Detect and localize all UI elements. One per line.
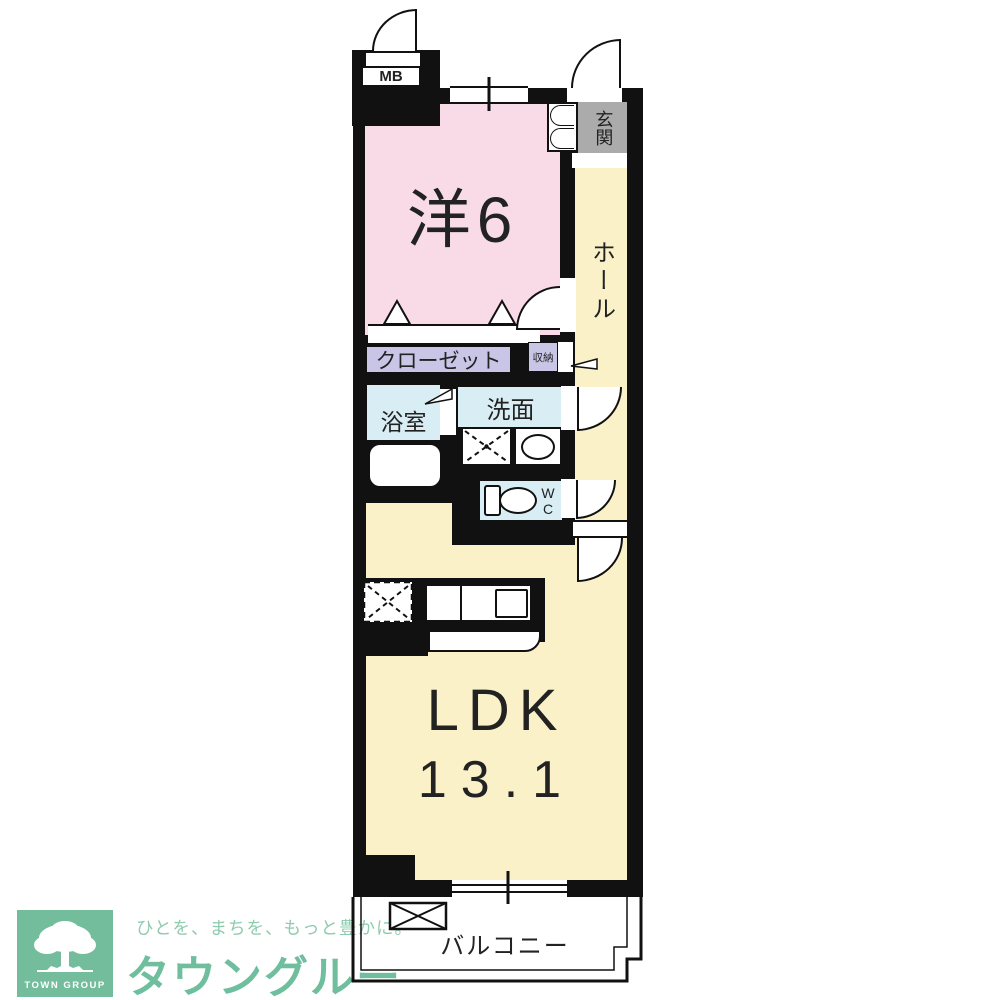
shoe-cabinet-fan-icon (550, 128, 574, 149)
window-top (450, 86, 528, 104)
meter-box-door-arc (372, 9, 417, 51)
shoe-cabinet-fan-icon (550, 105, 574, 126)
kitchen-counter-lip (428, 630, 541, 652)
meter-box-label: MB (379, 68, 402, 85)
window-glass-line (452, 891, 567, 893)
washroom: 洗面 (458, 387, 563, 427)
meter-box: MB (361, 66, 421, 87)
kitchen-wall-block-lower (356, 642, 428, 656)
hall (575, 168, 627, 522)
wash-basin (514, 427, 562, 466)
meter-box-sill (366, 53, 420, 66)
closet-sill (368, 324, 540, 345)
toilet-door-opening (561, 479, 576, 518)
brand-name: タウングループ (126, 941, 426, 993)
entrance-floor: 玄関 (578, 102, 627, 153)
washroom-door-opening (561, 386, 577, 430)
bathtub (368, 443, 442, 488)
logo-square-label: TOWN GROUP (17, 979, 113, 991)
bathroom-label: 浴室 (381, 403, 427, 437)
closet: クローゼット (365, 345, 512, 374)
toilet-label: WC (541, 485, 555, 517)
hall-label: ホール (584, 240, 619, 324)
western-room-door-opening (560, 278, 576, 332)
western-room-label: 洋6 (365, 160, 560, 270)
floorplan-page: TOWN GROUP ひとを、まちを、もっと豊かに。 タウングループ MB 玄関… (0, 0, 1000, 1000)
window-balcony (452, 880, 567, 897)
ldk-door-threshold (573, 520, 627, 538)
wash-basin-bowl-icon (521, 434, 555, 460)
kitchen-sink (495, 589, 528, 618)
entrance-door-arc (571, 39, 621, 88)
ldk-pillar (356, 855, 415, 880)
kitchen-counter-divider (460, 586, 462, 620)
bathroom: 浴室 (367, 385, 440, 440)
toilet-bowl (499, 487, 537, 514)
shoe-cabinet (547, 102, 578, 152)
balcony-label: バルコニー (425, 928, 585, 958)
storage-label: 収納 (533, 350, 554, 365)
ldk-label: LDK (366, 678, 627, 742)
bathroom-door-opening (440, 389, 456, 435)
closet-label: クローゼット (376, 345, 502, 375)
ldk-area-label: 13.1 (366, 750, 627, 810)
hall-label-wrap: ホール (580, 226, 622, 338)
window-glass-line (452, 884, 567, 886)
toilet-label-wrap: WC (536, 482, 560, 520)
brand-tagline: ひとを、まちを、もっと豊かに。 (136, 915, 436, 939)
storage: 収納 (528, 342, 558, 372)
washing-machine-space (461, 427, 512, 466)
washroom-label: 洗面 (487, 390, 535, 425)
entrance-label: 玄関 (593, 110, 613, 146)
town-group-logo: TOWN GROUP (17, 910, 113, 997)
storage-door-opening (558, 342, 573, 372)
entrance-step (572, 153, 627, 168)
